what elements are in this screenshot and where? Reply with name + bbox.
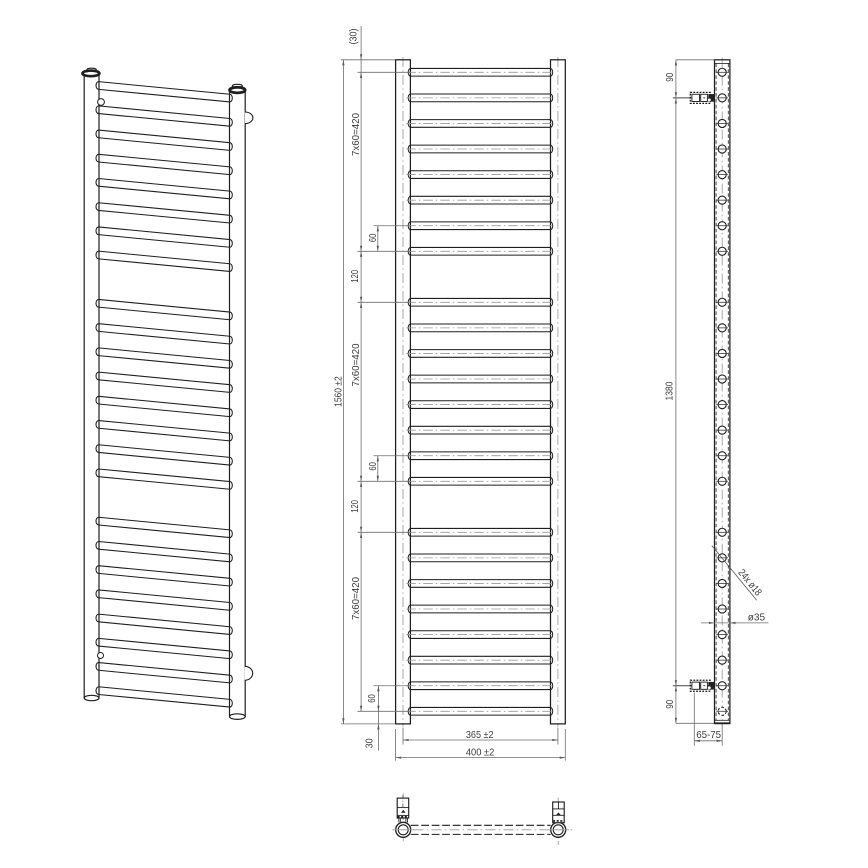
- svg-text:60: 60: [368, 233, 379, 242]
- svg-text:7x60=420: 7x60=420: [351, 577, 362, 620]
- svg-text:(30): (30): [348, 29, 359, 45]
- svg-text:60: 60: [367, 694, 378, 703]
- svg-text:30: 30: [364, 738, 375, 748]
- svg-text:120: 120: [350, 500, 361, 513]
- svg-text:400 ±2: 400 ±2: [466, 748, 495, 759]
- svg-text:1560 ±2: 1560 ±2: [333, 376, 344, 407]
- svg-text:1380: 1380: [664, 381, 675, 400]
- svg-text:120: 120: [350, 270, 361, 283]
- svg-text:7x60=420: 7x60=420: [351, 343, 362, 386]
- svg-text:60: 60: [368, 462, 379, 471]
- svg-text:365 ±2: 365 ±2: [466, 730, 494, 741]
- svg-text:65-75: 65-75: [696, 730, 721, 741]
- svg-text:90: 90: [665, 73, 676, 82]
- svg-text:7x60=420: 7x60=420: [351, 113, 362, 156]
- svg-text:90: 90: [665, 700, 676, 709]
- svg-text:ø35: ø35: [748, 613, 766, 624]
